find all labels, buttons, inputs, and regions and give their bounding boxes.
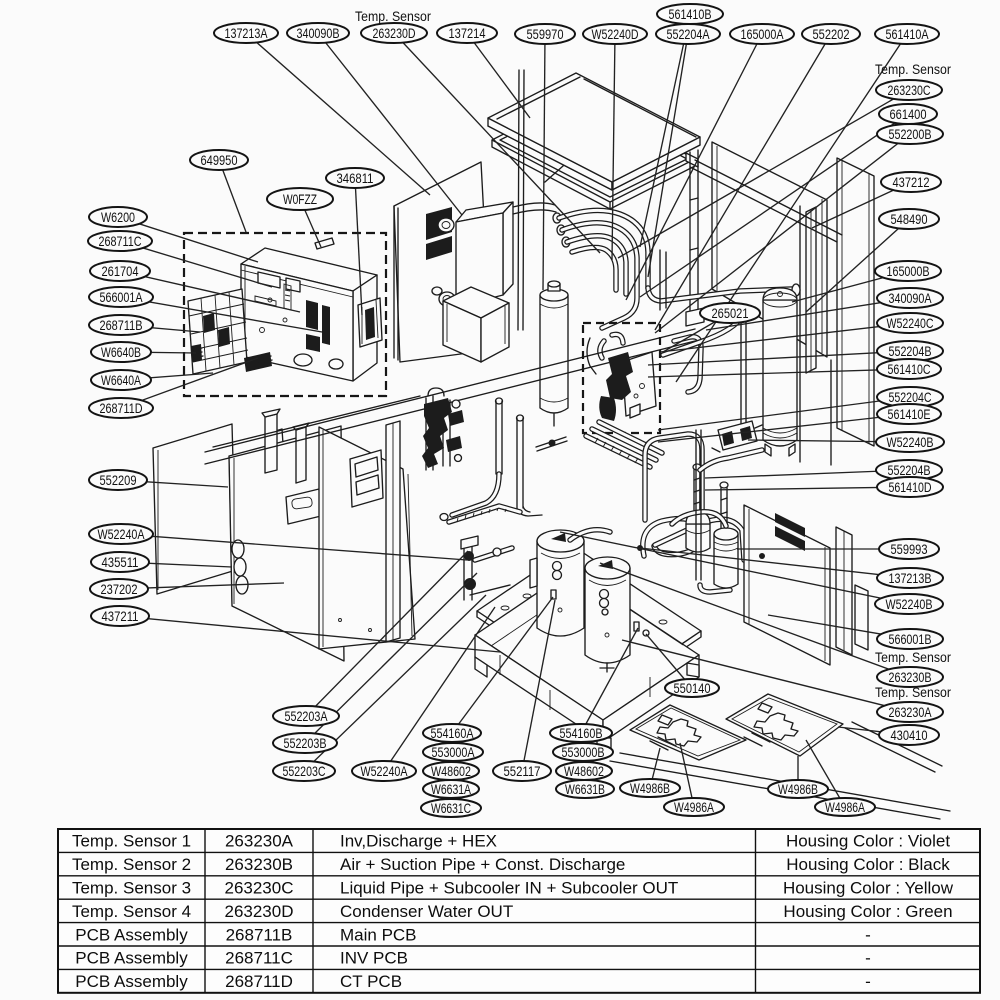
svg-text:Inv,Discharge + HEX: Inv,Discharge + HEX <box>340 832 497 851</box>
svg-text:566001B: 566001B <box>889 631 932 647</box>
svg-text:552204B: 552204B <box>889 343 932 359</box>
svg-text:263230B: 263230B <box>889 669 932 685</box>
svg-text:261704: 261704 <box>102 263 139 279</box>
svg-text:554160B: 554160B <box>560 725 603 741</box>
svg-text:W6631C: W6631C <box>431 800 471 816</box>
svg-text:265021: 265021 <box>712 305 749 321</box>
svg-text:268711B: 268711B <box>100 317 143 333</box>
svg-text:437212: 437212 <box>893 174 930 190</box>
svg-text:W52240B: W52240B <box>886 596 933 612</box>
svg-text:W4986A: W4986A <box>674 799 714 815</box>
svg-text:552204C: 552204C <box>889 389 932 405</box>
svg-text:Main PCB: Main PCB <box>340 925 417 944</box>
svg-text:165000A: 165000A <box>741 26 785 42</box>
svg-text:263230D: 263230D <box>224 902 293 921</box>
svg-text:Temp. Sensor: Temp. Sensor <box>355 8 431 24</box>
svg-text:346811: 346811 <box>337 170 374 186</box>
svg-text:553000B: 553000B <box>562 744 605 760</box>
svg-text:165000B: 165000B <box>887 263 930 279</box>
svg-text:-: - <box>865 972 871 991</box>
svg-text:263230A: 263230A <box>225 832 294 851</box>
svg-text:Housing Color : Yellow: Housing Color : Yellow <box>783 879 954 898</box>
svg-text:550140: 550140 <box>674 680 711 696</box>
svg-text:Temp. Sensor 4: Temp. Sensor 4 <box>72 902 191 921</box>
svg-text:-: - <box>865 925 871 944</box>
svg-text:W6640A: W6640A <box>101 372 141 388</box>
svg-text:W48602: W48602 <box>431 763 471 779</box>
svg-text:552203A: 552203A <box>285 708 329 724</box>
svg-text:340090A: 340090A <box>889 290 933 306</box>
svg-text:552203C: 552203C <box>283 763 326 779</box>
svg-text:W52240A: W52240A <box>98 526 146 542</box>
svg-text:548490: 548490 <box>891 211 928 227</box>
svg-text:554160A: 554160A <box>431 725 475 741</box>
svg-text:268711D: 268711D <box>225 972 293 991</box>
svg-text:649950: 649950 <box>201 152 238 168</box>
svg-text:561410C: 561410C <box>888 361 931 377</box>
svg-text:552204B: 552204B <box>888 462 931 478</box>
svg-text:566001A: 566001A <box>100 289 144 305</box>
svg-text:559993: 559993 <box>891 541 928 557</box>
svg-text:268711D: 268711D <box>100 400 143 416</box>
svg-text:Housing Color : Violet: Housing Color : Violet <box>786 832 950 851</box>
svg-text:W4986B: W4986B <box>630 780 670 796</box>
svg-text:263230C: 263230C <box>888 82 931 98</box>
svg-text:Housing Color : Black: Housing Color : Black <box>786 855 950 874</box>
svg-text:263230A: 263230A <box>889 704 933 720</box>
svg-text:435511: 435511 <box>102 554 139 570</box>
svg-text:561410A: 561410A <box>886 26 930 42</box>
svg-text:552209: 552209 <box>100 472 137 488</box>
svg-text:Temp. Sensor: Temp. Sensor <box>875 684 951 700</box>
svg-text:437211: 437211 <box>102 608 139 624</box>
svg-text:W48602: W48602 <box>564 763 604 779</box>
svg-text:W52240C: W52240C <box>887 315 934 331</box>
svg-text:Air + Suction Pipe + Const. Di: Air + Suction Pipe + Const. Discharge <box>340 855 625 874</box>
svg-text:268711C: 268711C <box>225 949 293 968</box>
svg-text:430410: 430410 <box>891 727 928 743</box>
svg-text:Liquid Pipe + Subcooler IN + S: Liquid Pipe + Subcooler IN + Subcooler O… <box>340 879 678 898</box>
svg-text:Housing Color : Green: Housing Color : Green <box>783 902 952 921</box>
svg-text:Temp. Sensor: Temp. Sensor <box>875 649 951 665</box>
svg-text:552203B: 552203B <box>284 735 327 751</box>
svg-text:552202: 552202 <box>813 26 850 42</box>
svg-text:661400: 661400 <box>890 106 927 122</box>
svg-text:-: - <box>865 949 871 968</box>
svg-text:137213B: 137213B <box>889 570 932 586</box>
svg-text:INV PCB: INV PCB <box>340 949 408 968</box>
svg-text:Temp. Sensor 3: Temp. Sensor 3 <box>72 879 191 898</box>
svg-text:W6631A: W6631A <box>431 781 471 797</box>
svg-text:561410E: 561410E <box>888 406 931 422</box>
svg-text:W52240D: W52240D <box>592 26 639 42</box>
svg-text:W6631B: W6631B <box>565 781 605 797</box>
svg-text:Temp. Sensor 2: Temp. Sensor 2 <box>72 855 191 874</box>
svg-text:PCB Assembly: PCB Assembly <box>75 925 188 944</box>
svg-text:CT PCB: CT PCB <box>340 972 402 991</box>
svg-text:559970: 559970 <box>527 26 564 42</box>
svg-text:237202: 237202 <box>101 581 138 597</box>
svg-text:268711C: 268711C <box>99 233 142 249</box>
svg-text:W52240B: W52240B <box>887 434 934 450</box>
svg-text:PCB Assembly: PCB Assembly <box>75 972 188 991</box>
svg-text:552117: 552117 <box>504 763 541 779</box>
svg-text:W6640B: W6640B <box>101 344 141 360</box>
svg-text:W6200: W6200 <box>101 209 135 225</box>
svg-text:552204A: 552204A <box>667 26 711 42</box>
svg-text:137213A: 137213A <box>225 25 269 41</box>
svg-text:263230C: 263230C <box>224 879 293 898</box>
svg-text:W4986B: W4986B <box>778 781 818 797</box>
svg-text:Temp. Sensor 1: Temp. Sensor 1 <box>72 832 191 851</box>
svg-text:561410D: 561410D <box>889 479 932 495</box>
svg-text:561410B: 561410B <box>669 6 712 22</box>
svg-text:137214: 137214 <box>449 25 486 41</box>
svg-text:263230D: 263230D <box>373 25 416 41</box>
svg-text:263230B: 263230B <box>225 855 293 874</box>
svg-text:W52240A: W52240A <box>361 763 409 779</box>
svg-text:552200B: 552200B <box>889 126 932 142</box>
svg-text:PCB Assembly: PCB Assembly <box>75 949 188 968</box>
svg-text:553000A: 553000A <box>432 744 476 760</box>
svg-text:268711B: 268711B <box>226 925 293 944</box>
svg-text:Temp. Sensor: Temp. Sensor <box>875 61 951 77</box>
svg-text:W0FZZ: W0FZZ <box>283 191 317 207</box>
svg-text:W4986A: W4986A <box>825 799 865 815</box>
svg-text:340090B: 340090B <box>297 25 340 41</box>
svg-text:Condenser Water OUT: Condenser Water OUT <box>340 902 513 921</box>
